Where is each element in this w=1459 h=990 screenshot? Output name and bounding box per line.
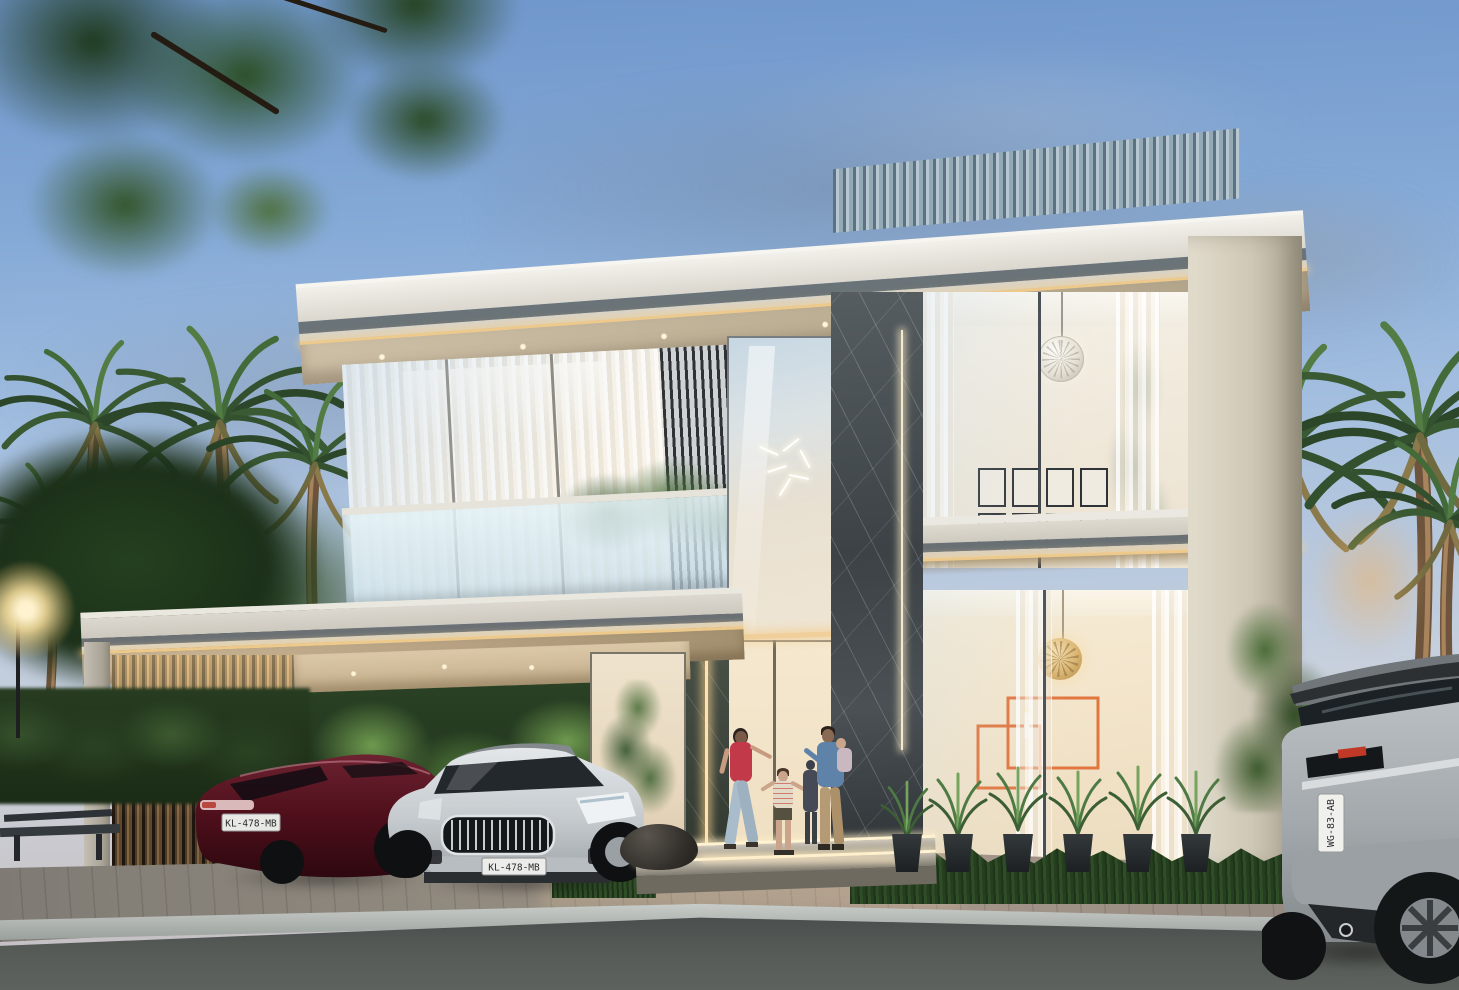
potted-plant [880, 780, 934, 872]
planter-bowl [620, 824, 698, 870]
spiky-plant-leaves [1048, 768, 1108, 838]
potted-plant [1108, 760, 1168, 872]
plant-pot [1061, 834, 1095, 872]
overhanging-tree [0, 0, 700, 380]
architectural-render: KL-478-MB KL-478-MB [0, 0, 1459, 990]
plant-pot [890, 834, 924, 872]
grey-suv: WG-83-AB [1262, 642, 1459, 990]
potted-plant [1166, 768, 1226, 872]
tower-led-strip [901, 330, 903, 750]
plant-pot [941, 834, 975, 872]
suv-plate: WG-83-AB [1326, 799, 1337, 847]
potted-plant [988, 762, 1048, 872]
threshold-light [700, 856, 910, 862]
bench-leg [96, 834, 102, 860]
spiky-plant-leaves [880, 780, 934, 840]
plant-pot [1001, 834, 1035, 872]
bench-leg [14, 835, 20, 861]
spiky-plant-leaves [1166, 768, 1226, 838]
silver-sedan: KL-478-MB [380, 732, 652, 890]
tree-foliage [190, 150, 350, 270]
red-sedan-plate: KL-478-MB [225, 819, 277, 830]
spiky-plant-leaves [928, 772, 988, 838]
spiky-plant-leaves [1108, 760, 1168, 836]
door-jamb [773, 640, 776, 868]
plant-pot [1121, 834, 1155, 872]
street-bench [0, 818, 122, 868]
spiky-plant-leaves [988, 762, 1048, 836]
potted-plant [1048, 768, 1108, 872]
tree-foliage [320, 40, 530, 200]
silver-sedan-plate: KL-478-MB [488, 863, 540, 874]
potted-plant [928, 772, 988, 872]
stick-chandelier [755, 442, 825, 502]
plant-pot [1179, 834, 1213, 872]
